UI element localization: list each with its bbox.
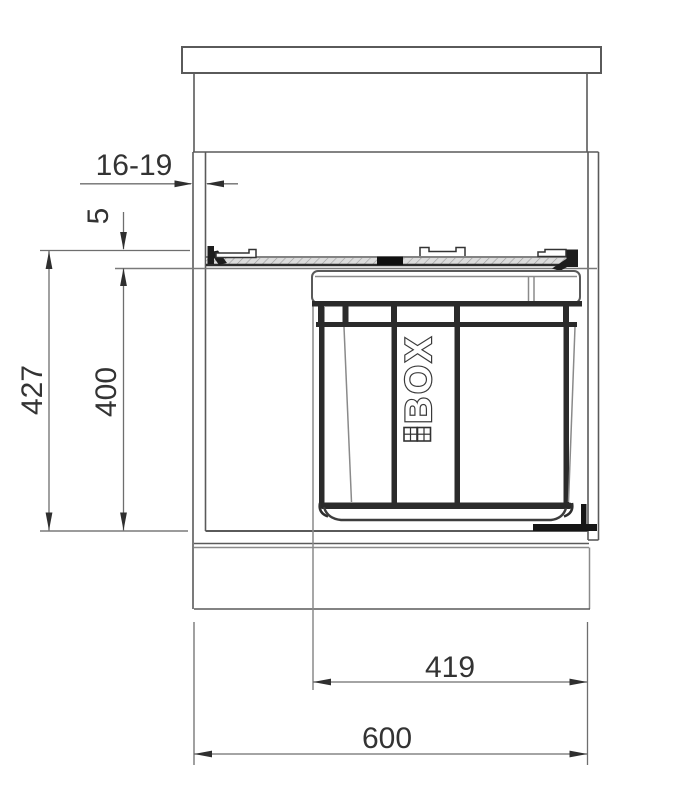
countertop [182, 47, 601, 73]
arrowhead-down [120, 232, 127, 250]
bin-lid [312, 271, 580, 303]
dim-label-400: 400 [90, 367, 123, 417]
frame-top-rail [312, 301, 582, 307]
arrowhead-left [194, 751, 212, 758]
dimension-system-width: 419 [313, 521, 588, 690]
bin-right-wall [569, 327, 576, 502]
frame-upright [564, 307, 570, 507]
arrowhead-left [313, 679, 331, 686]
clamp-bar [216, 250, 256, 258]
dimension-side-panel-thickness: 16-19 [80, 149, 238, 187]
arrowhead-down [46, 513, 53, 531]
dim-label-16-19: 16-19 [96, 149, 173, 182]
cabinet-waste-bin-technical-drawing: BOX 16-19 5 427 400 [0, 0, 699, 800]
dimension-cabinet-width: 600 [194, 622, 588, 765]
dimension-top-clearance: 5 [82, 208, 127, 250]
frame-bottom-rail [320, 503, 572, 510]
rail-damper-block [377, 257, 403, 266]
arrowhead-right [570, 679, 588, 686]
arrowhead-right [570, 751, 588, 758]
dim-label-419: 419 [425, 651, 475, 684]
installation-drawing-page: BOX 16-19 5 427 400 [0, 0, 699, 800]
waste-bin: BOX [324, 327, 575, 520]
pull-out-rail [115, 246, 597, 271]
rear-foot-post [581, 504, 587, 531]
arrowhead-right [175, 180, 193, 187]
arrowhead-up [120, 268, 127, 286]
frame-upright [319, 307, 325, 507]
dimension-system-height: 400 [90, 268, 127, 531]
frame-second-rail [316, 322, 577, 327]
countertop-slab [182, 47, 601, 73]
arrowhead-down [120, 513, 127, 531]
bin-left-wall [344, 327, 352, 502]
rail-clip [420, 248, 465, 257]
dim-label-5: 5 [82, 208, 115, 225]
right-side-panel [588, 152, 599, 540]
frame-upright [455, 307, 461, 507]
rear-foot-bar [533, 524, 597, 531]
dim-label-600: 600 [362, 722, 412, 755]
box-logo-icon [404, 428, 431, 442]
bin-brand-label: BOX [398, 334, 439, 423]
left-side-panel [193, 152, 206, 609]
arrowhead-up [46, 251, 53, 269]
bracket-bar [538, 250, 566, 257]
arrowhead-left [206, 180, 224, 187]
frame-upright [392, 307, 398, 507]
frame-connector [343, 301, 349, 327]
bin-frame [312, 301, 597, 531]
dim-label-427: 427 [16, 365, 49, 415]
